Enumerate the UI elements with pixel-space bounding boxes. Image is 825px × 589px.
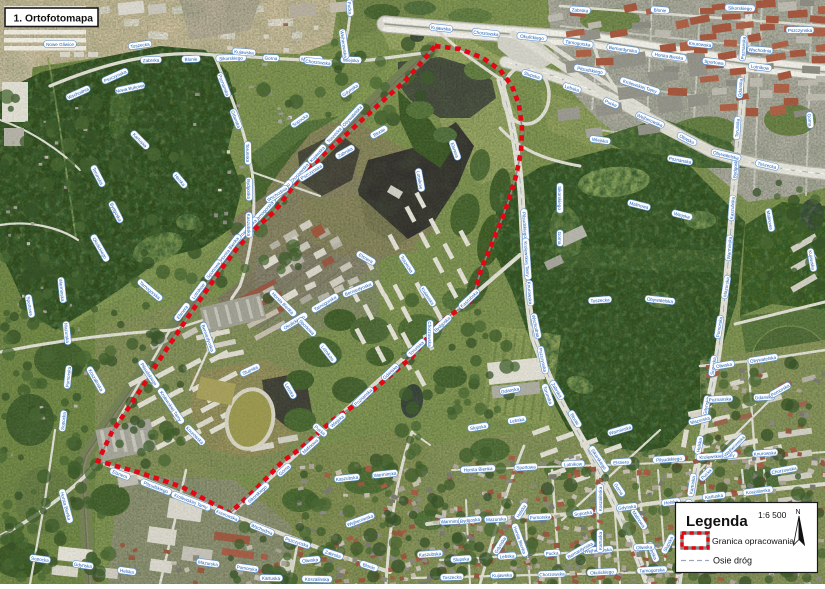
svg-text:Lebska: Lebska: [499, 553, 515, 559]
svg-text:Kartuska: Kartuska: [262, 576, 281, 581]
svg-text:Zabrska: Zabrska: [143, 58, 160, 64]
svg-text:Toszecka: Toszecka: [442, 575, 462, 581]
svg-text:Sikorskiego: Sikorskiego: [219, 55, 243, 61]
svg-text:Pucka: Pucka: [545, 550, 559, 556]
svg-text:N: N: [796, 509, 801, 516]
svg-text:Chorzowska: Chorzowska: [427, 321, 432, 347]
svg-text:1. Ortofotomapa: 1. Ortofotomapa: [14, 14, 94, 25]
svg-text:Kartuska: Kartuska: [598, 531, 603, 550]
svg-text:Oliwska: Oliwska: [636, 544, 653, 550]
svg-text:Sikorskiego: Sikorskiego: [557, 186, 562, 210]
svg-text:Gorna: Gorna: [265, 56, 278, 61]
svg-text:Kujawska: Kujawska: [492, 573, 512, 579]
svg-text:Pszczynska: Pszczynska: [788, 28, 813, 33]
svg-text:Kaszubska: Kaszubska: [246, 214, 251, 237]
svg-text:Granica opracowania: Granica opracowania: [712, 536, 794, 546]
svg-text:Koszalinska: Koszalinska: [305, 577, 330, 582]
svg-text:Legenda: Legenda: [686, 513, 748, 530]
svg-text:Torunska: Torunska: [245, 144, 250, 163]
svg-text:Nowe Gliwice: Nowe Gliwice: [46, 42, 74, 47]
svg-text:Chorzowska: Chorzowska: [539, 571, 565, 577]
svg-text:Mazurska: Mazurska: [486, 516, 507, 522]
svg-text:Blonie: Blonie: [185, 57, 198, 62]
svg-text:Osie dróg: Osie dróg: [713, 556, 752, 566]
svg-text:Koszalinska: Koszalinska: [598, 486, 603, 511]
svg-text:Sikorskiego: Sikorskiego: [728, 5, 752, 11]
svg-text:Lotnikow: Lotnikow: [564, 461, 583, 467]
svg-text:1:6 500: 1:6 500: [758, 510, 787, 520]
svg-text:Sportowa: Sportowa: [516, 464, 536, 470]
svg-text:Bydgoska: Bydgoska: [246, 179, 251, 200]
svg-text:Gorna: Gorna: [557, 232, 562, 245]
svg-text:Blonie: Blonie: [653, 7, 667, 13]
